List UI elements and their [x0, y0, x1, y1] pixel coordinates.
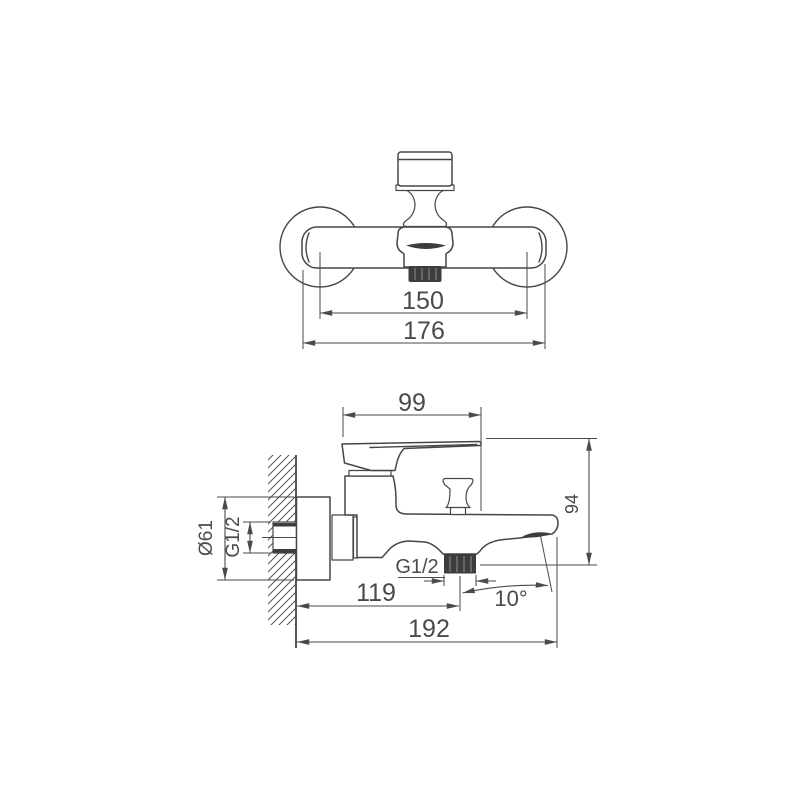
diverter-knob	[443, 479, 473, 515]
handle-neck	[403, 190, 446, 227]
outlet-thread-side	[444, 554, 476, 574]
front-view: 150 176	[280, 152, 567, 349]
dim-94-label: 94	[562, 494, 582, 514]
dim-spout-angle-label: 10°	[494, 586, 527, 611]
dim-119-label: 119	[356, 579, 396, 607]
dim-99-label: 99	[398, 389, 426, 417]
handle-cap	[398, 152, 452, 186]
technical-drawing-canvas: 150 176	[0, 0, 800, 800]
side-view: 99 94 Ø61 G1/2	[196, 389, 597, 648]
dimension-119: 119	[297, 579, 459, 607]
wall-flange	[297, 497, 331, 580]
outlet-thread-front	[409, 266, 442, 282]
dim-outlet-thread-label: G1/2	[395, 556, 438, 578]
dim-176-label: 176	[403, 317, 445, 345]
dim-192-label: 192	[408, 615, 450, 643]
dimension-94: 94	[480, 439, 597, 566]
dim-inlet-thread-label: G1/2	[223, 516, 244, 557]
dim-flange-diameter-label: Ø61	[196, 520, 217, 556]
faucet-technical-drawing: 150 176	[0, 0, 800, 800]
dim-150-label: 150	[402, 287, 444, 315]
body-connector	[332, 515, 353, 560]
cartridge-cap	[349, 471, 391, 477]
